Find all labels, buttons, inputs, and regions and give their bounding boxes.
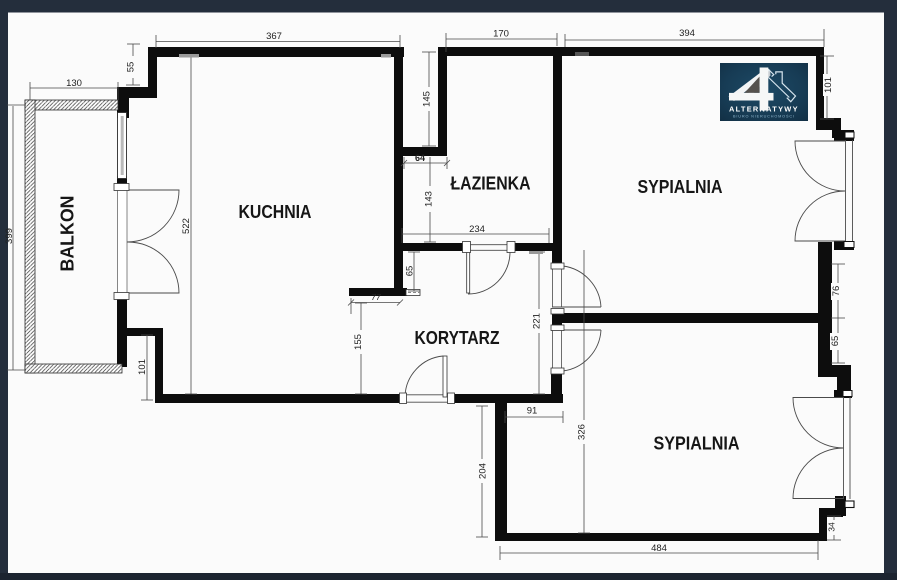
svg-text:77: 77 [371, 292, 381, 302]
svg-text:221: 221 [532, 313, 543, 329]
svg-text:BALKON: BALKON [57, 196, 78, 272]
svg-text:64: 64 [415, 153, 425, 163]
svg-text:KUCHNIA: KUCHNIA [239, 201, 312, 222]
svg-text:204: 204 [478, 463, 489, 479]
svg-text:SYPIALNIA: SYPIALNIA [654, 433, 740, 454]
svg-text:91: 91 [527, 406, 538, 417]
svg-text:326: 326 [577, 424, 588, 440]
svg-text:76: 76 [831, 286, 842, 297]
svg-text:BIURO NIERUCHOMOŚCI: BIURO NIERUCHOMOŚCI [733, 114, 795, 119]
svg-text:SYPIALNIA: SYPIALNIA [638, 176, 723, 197]
svg-text:65: 65 [405, 266, 416, 277]
svg-text:234: 234 [469, 224, 485, 235]
svg-text:55: 55 [126, 62, 137, 73]
svg-text:155: 155 [353, 334, 364, 350]
svg-text:130: 130 [66, 78, 82, 89]
svg-text:367: 367 [266, 31, 282, 42]
svg-text:65: 65 [830, 336, 841, 347]
svg-text:399: 399 [4, 228, 15, 244]
svg-text:522: 522 [181, 218, 192, 234]
svg-text:170: 170 [493, 29, 509, 40]
svg-text:ŁAZIENKA: ŁAZIENKA [451, 173, 531, 194]
svg-text:101: 101 [137, 359, 148, 375]
svg-text:101: 101 [823, 77, 834, 93]
svg-text:484: 484 [651, 543, 667, 554]
svg-text:143: 143 [424, 191, 435, 207]
svg-text:394: 394 [679, 28, 695, 39]
svg-text:145: 145 [422, 91, 433, 107]
svg-text:34: 34 [827, 522, 837, 532]
svg-text:KORYTARZ: KORYTARZ [415, 327, 500, 348]
